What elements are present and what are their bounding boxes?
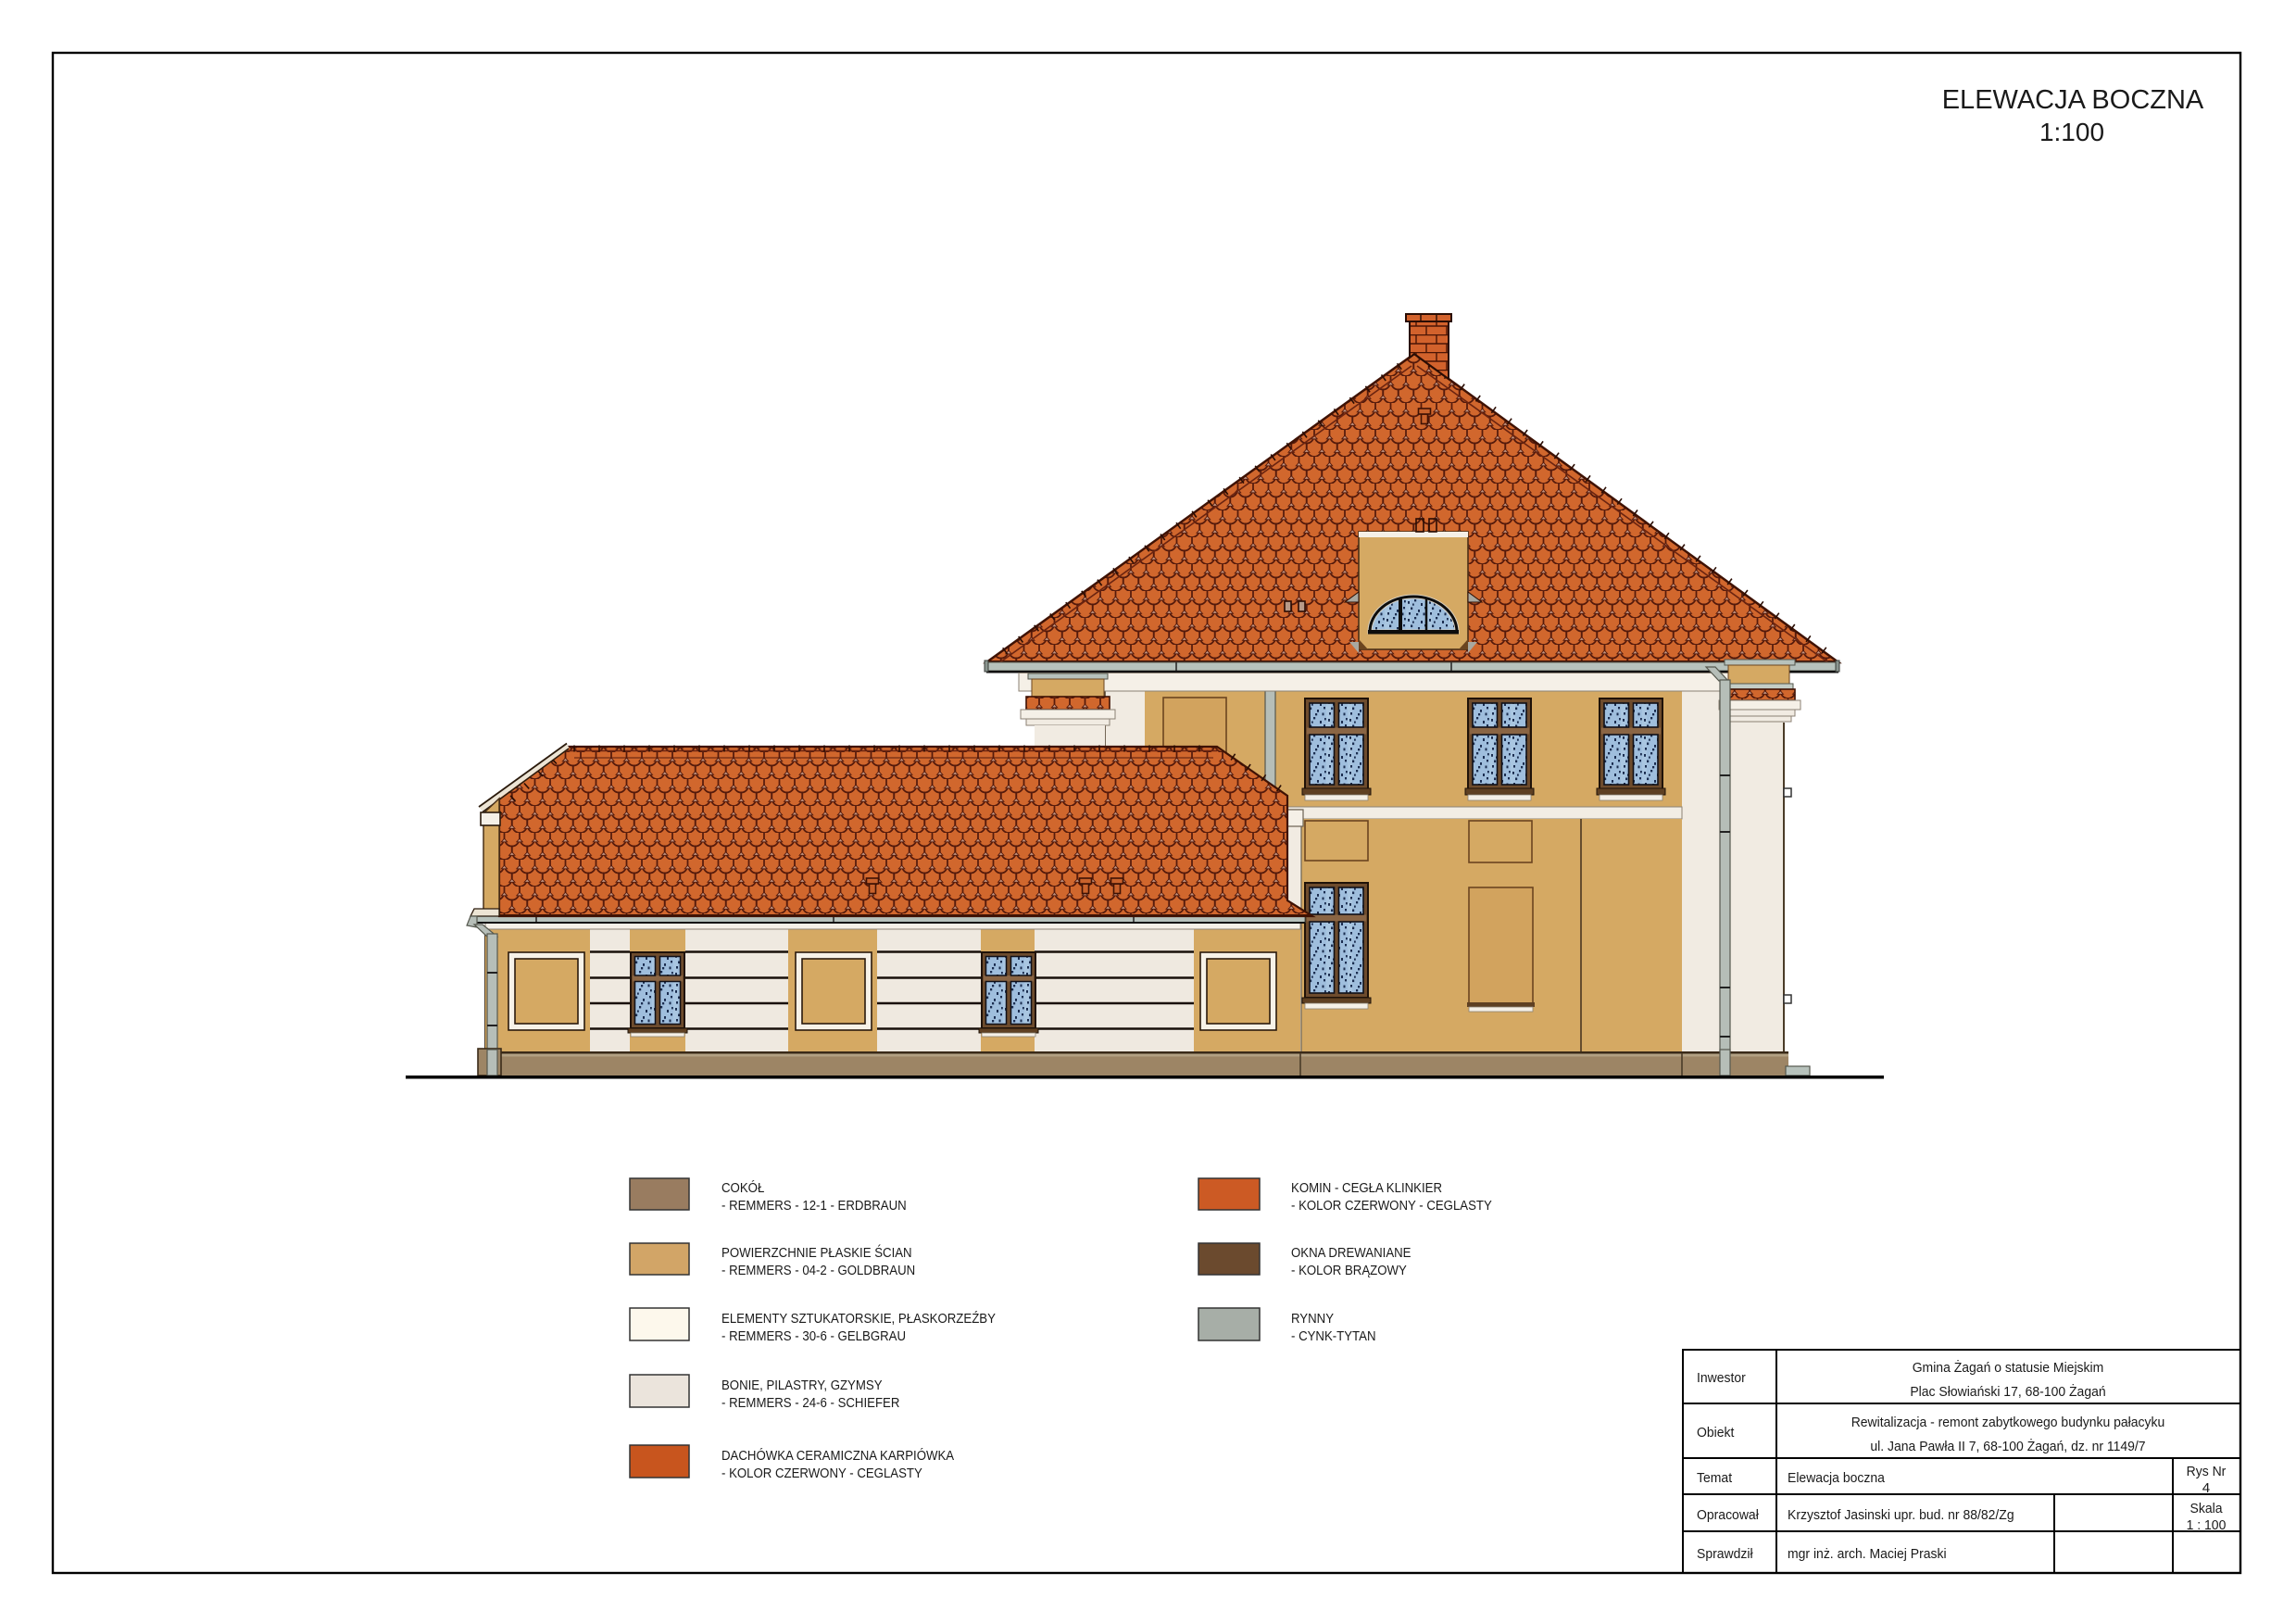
svg-text:1:100: 1:100 [2039, 118, 2104, 146]
svg-text:KOMIN - CEGŁA KLINKIER: KOMIN - CEGŁA KLINKIER [1291, 1180, 1442, 1196]
svg-text:ul. Jana Pawła II 7, 68-100 Ża: ul. Jana Pawła II 7, 68-100 Żagań, dz. n… [1870, 1438, 2145, 1454]
svg-text:- REMMERS - 04-2 - GOLDBRAUN: - REMMERS - 04-2 - GOLDBRAUN [721, 1263, 915, 1278]
svg-text:- KOLOR CZERWONY - CEGLASTY: - KOLOR CZERWONY - CEGLASTY [1291, 1198, 1492, 1214]
svg-text:- REMMERS - 30-6 - GELBGRAU: - REMMERS - 30-6 - GELBGRAU [721, 1328, 906, 1344]
svg-text:- KOLOR CZERWONY - CEGLASTY: - KOLOR CZERWONY - CEGLASTY [721, 1466, 922, 1481]
svg-text:ELEWACJA BOCZNA: ELEWACJA BOCZNA [1942, 85, 2204, 115]
svg-text:Rys Nr: Rys Nr [2187, 1464, 2227, 1479]
svg-text:POWIERZCHNIE PŁASKIE ŚCIAN: POWIERZCHNIE PŁASKIE ŚCIAN [721, 1244, 912, 1261]
svg-text:COKÓŁ: COKÓŁ [721, 1180, 764, 1196]
svg-text:Elewacja boczna: Elewacja boczna [1788, 1470, 1885, 1486]
svg-text:Inwestor: Inwestor [1697, 1370, 1746, 1386]
svg-text:Temat: Temat [1697, 1470, 1733, 1486]
svg-text:Sprawdził: Sprawdził [1697, 1546, 1753, 1562]
svg-text:4: 4 [2202, 1480, 2210, 1496]
svg-text:RYNNY: RYNNY [1291, 1311, 1334, 1327]
svg-text:OKNA DREWANIANE: OKNA DREWANIANE [1291, 1245, 1411, 1261]
svg-text:ELEMENTY SZTUKATORSKIE, PŁASKO: ELEMENTY SZTUKATORSKIE, PŁASKORZEŹBY [721, 1311, 996, 1327]
svg-text:Opracował: Opracował [1697, 1507, 1759, 1523]
svg-text:Plac Słowiański 17, 68-100 Żag: Plac Słowiański 17, 68-100 Żagań [1910, 1383, 2105, 1400]
svg-text:Obiekt: Obiekt [1697, 1425, 1735, 1441]
svg-text:1 : 100: 1 : 100 [2187, 1517, 2227, 1533]
svg-text:- CYNK-TYTAN: - CYNK-TYTAN [1291, 1328, 1376, 1344]
svg-text:- REMMERS - 12-1 - ERDBRAUN: - REMMERS - 12-1 - ERDBRAUN [721, 1198, 907, 1214]
svg-text:BONIE, PILASTRY, GZYMSY: BONIE, PILASTRY, GZYMSY [721, 1378, 883, 1393]
svg-text:- KOLOR BRĄZOWY: - KOLOR BRĄZOWY [1291, 1263, 1407, 1278]
svg-text:Krzysztof Jasinski upr. bud. n: Krzysztof Jasinski upr. bud. nr 88/82/Zg [1788, 1507, 2014, 1523]
svg-text:- REMMERS - 24-6 - SCHIEFER: - REMMERS - 24-6 - SCHIEFER [721, 1395, 899, 1411]
svg-text:Rewitalizacja - remont zabytko: Rewitalizacja - remont zabytkowego budyn… [1851, 1415, 2165, 1430]
svg-text:Gmina Żagań o statusie Miejski: Gmina Żagań o statusie Miejskim [1913, 1359, 2104, 1376]
svg-text:DACHÓWKA CERAMICZNA KARPIÓWKA: DACHÓWKA CERAMICZNA KARPIÓWKA [721, 1448, 955, 1464]
svg-text:Skala: Skala [2190, 1501, 2224, 1516]
svg-text:mgr inż. arch. Maciej Praski: mgr inż. arch. Maciej Praski [1788, 1546, 1947, 1562]
